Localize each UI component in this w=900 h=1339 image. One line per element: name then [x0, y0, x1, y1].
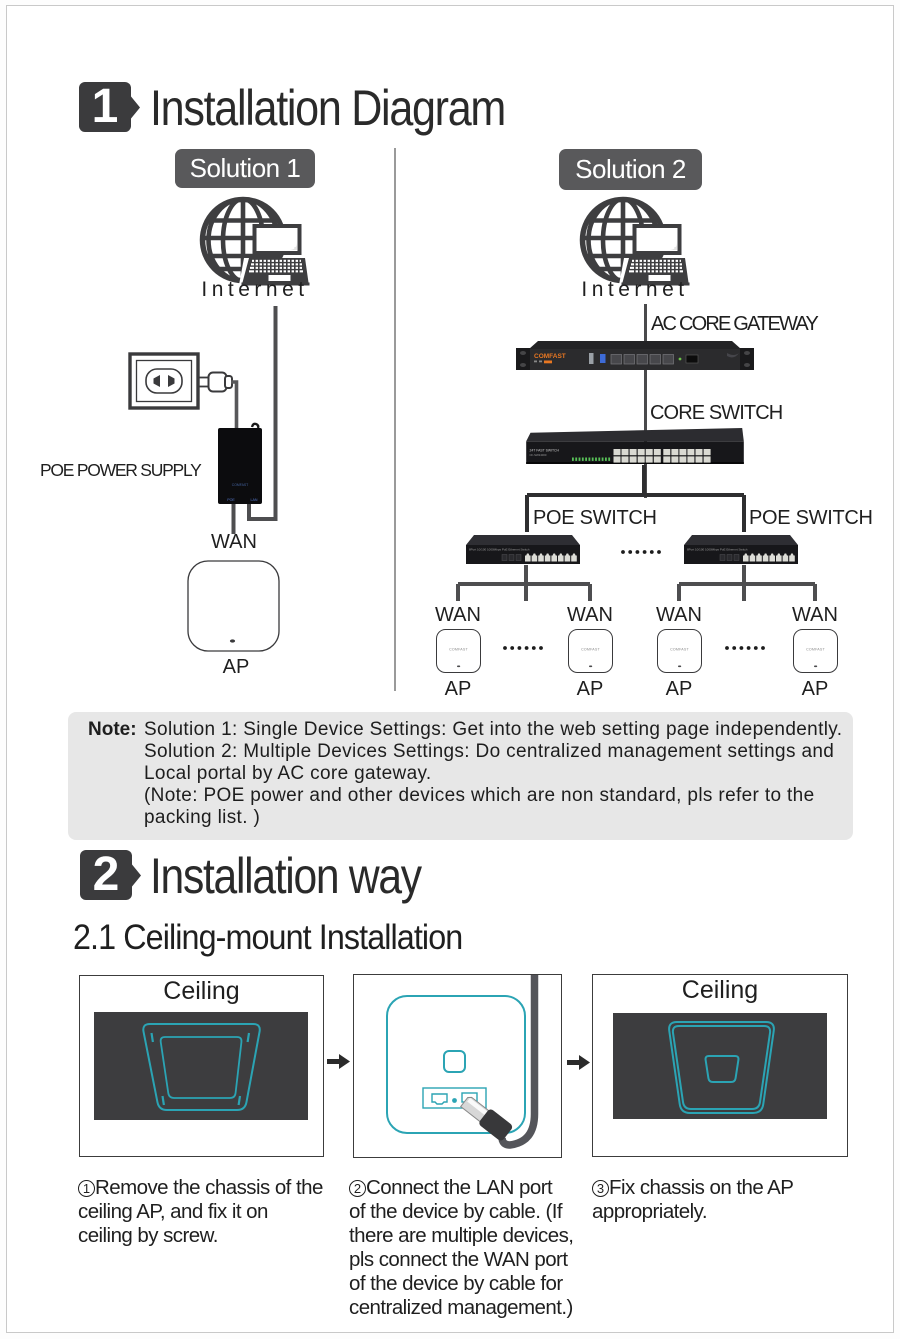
- svg-text:COMFAST: COMFAST: [670, 648, 689, 652]
- svg-text:COMFAST: COMFAST: [534, 353, 566, 360]
- svg-text:COMFAST: COMFAST: [449, 648, 468, 652]
- svg-text:LAN: LAN: [251, 498, 258, 502]
- svg-text:8Port 10/100 1000Mbps PoE Ethe: 8Port 10/100 1000Mbps PoE Ethernet Switc…: [469, 548, 530, 552]
- svg-text:POE: POE: [227, 498, 235, 502]
- svg-text:8Port 10/100 1000Mbps PoE Ethe: 8Port 10/100 1000Mbps PoE Ethernet Switc…: [687, 548, 748, 552]
- svg-text:COMFAST: COMFAST: [806, 648, 825, 652]
- svg-text:COMFAST: COMFAST: [581, 648, 600, 652]
- svg-text:CF-SW24000: CF-SW24000: [530, 453, 547, 457]
- svg-text:COMFAST: COMFAST: [232, 483, 248, 487]
